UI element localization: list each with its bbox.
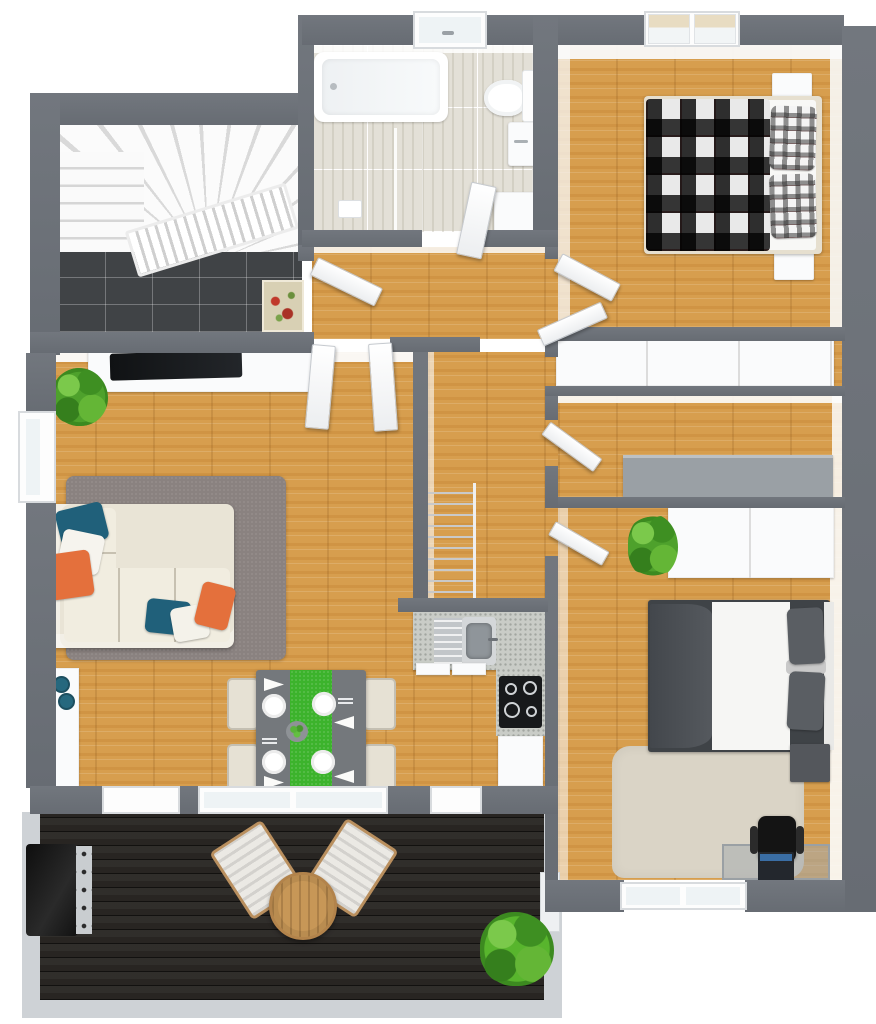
wall [30,786,102,814]
wall [482,786,558,814]
wall [302,230,422,247]
palm-plant [480,912,554,986]
wall [738,15,844,45]
plate [312,692,336,716]
wall [413,352,428,604]
living-window-glass [26,419,40,495]
tv [110,350,243,380]
plate [262,694,286,718]
sink-basin [466,623,492,659]
shower-glass-icon [394,128,397,230]
burner [523,681,537,695]
bed2-headboard [824,602,834,750]
wall [30,332,314,353]
wall [545,386,845,396]
laptop-screen [760,854,792,861]
built-in-wardrobe [556,336,834,386]
fruit-bowl [286,721,308,742]
terrace-sliding-door-pane [204,792,290,808]
bed2-duvet [712,602,790,750]
plant [52,368,108,426]
dining-chair [363,678,396,730]
wardrobe-divider [749,506,751,578]
storage-counter [623,455,833,498]
office-chair-arm [750,826,758,854]
pillow-dark [787,607,826,665]
terrace-sliding-door-pane [296,792,382,808]
sink-faucet-icon [488,638,498,641]
round-table [269,872,337,940]
bedroom1-window-pane [648,14,690,44]
wall [390,337,480,352]
wardrobe [668,506,834,578]
wall [398,598,548,612]
pillow-dark [787,671,826,731]
wall [545,466,558,508]
basin-faucet-icon [442,31,454,35]
bedroom2-window-glass [626,887,680,905]
shower-control [338,200,362,218]
wall [298,245,314,261]
cutlery-icon [262,738,277,740]
toilet [484,80,526,116]
plaid-pillow [769,105,817,171]
wall [180,786,198,814]
nightstand-dark [790,744,830,782]
drainboard [434,618,462,664]
wall [545,396,558,420]
bathtub-drain-icon [330,83,337,90]
grill [26,844,78,936]
plaid-blanket [646,99,770,251]
bed2-blanket [650,604,712,748]
wall [30,93,310,125]
dining-chair [227,678,259,730]
kitchen-base-cabinet [498,736,543,786]
wall [545,880,624,912]
wall [842,26,876,912]
kitchen-cabinet-front [452,663,486,675]
bedroom1-window-pane [694,14,736,44]
plate [311,750,335,774]
cutlery-icon [338,698,353,700]
burner [526,706,537,717]
wall [533,15,558,247]
terrace-door [430,786,482,814]
blue-bowl [58,693,75,710]
office-chair-arm [796,826,804,854]
wall [388,786,430,814]
wall [545,497,845,508]
doormat [262,280,304,332]
wall [26,499,56,788]
kitchen-cabinet-front [416,663,450,675]
bathroom-window-glass [419,17,481,43]
vanity-faucet-icon [514,140,528,143]
plant [628,514,678,578]
terrace-opening [102,786,180,814]
grill-shelf [76,846,92,934]
cutlery-icon [262,742,277,744]
wall [545,247,558,259]
wall [484,230,558,247]
wall [545,327,845,341]
bathtub-basin [322,59,440,115]
wall [302,15,417,45]
bedroom2-window-glass [686,887,740,905]
cutlery-icon [338,702,353,704]
wall [298,15,314,245]
wall [30,93,60,355]
wall [745,880,845,912]
wall [558,15,648,45]
burner [504,702,520,718]
plaid-pillow [769,173,817,239]
burner [505,683,517,695]
plate [262,750,286,774]
floor-plan [0,0,876,1024]
wall [26,353,56,415]
